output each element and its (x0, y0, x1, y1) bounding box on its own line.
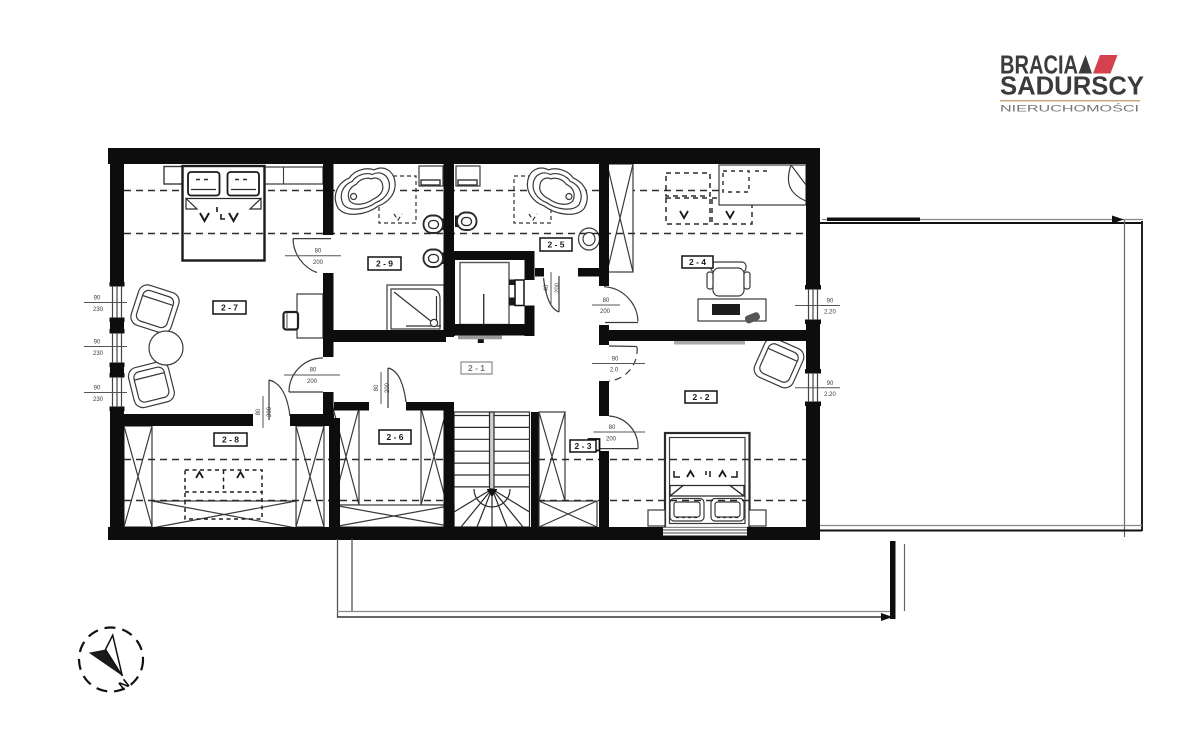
svg-text:2 - 2: 2 - 2 (692, 392, 709, 402)
svg-text:80: 80 (315, 249, 322, 255)
svg-text:SADURSCY: SADURSCY (1000, 71, 1144, 101)
svg-text:2 - 5: 2 - 5 (547, 240, 564, 250)
svg-text:2 - 1: 2 - 1 (468, 363, 485, 373)
svg-text:90: 90 (94, 340, 101, 346)
svg-text:90: 90 (94, 296, 101, 302)
svg-text:200: 200 (606, 437, 617, 443)
svg-text:200: 200 (385, 382, 391, 393)
svg-text:2.20: 2.20 (824, 310, 836, 316)
svg-text:200: 200 (267, 406, 273, 417)
svg-text:80: 80 (310, 368, 317, 374)
svg-text:80: 80 (603, 298, 610, 304)
svg-text:230: 230 (93, 307, 104, 313)
svg-text:40: 40 (544, 284, 550, 291)
svg-text:230: 230 (93, 351, 104, 357)
svg-text:200: 200 (555, 282, 561, 293)
svg-text:NIERUCHOMOŚCI: NIERUCHOMOŚCI (1000, 103, 1139, 115)
svg-text:80: 80 (609, 425, 616, 431)
svg-text:2 - 7: 2 - 7 (221, 303, 238, 313)
svg-text:90: 90 (612, 357, 619, 363)
svg-text:2 - 9: 2 - 9 (376, 259, 393, 269)
svg-text:200: 200 (600, 309, 611, 315)
svg-text:80: 80 (256, 408, 262, 415)
svg-text:230: 230 (93, 397, 104, 403)
svg-text:2 - 3: 2 - 3 (574, 441, 591, 451)
svg-text:2 - 6: 2 - 6 (386, 432, 403, 442)
svg-text:2.0: 2.0 (610, 368, 619, 374)
svg-text:90: 90 (94, 386, 101, 392)
svg-text:2 - 8: 2 - 8 (222, 435, 239, 445)
svg-text:2 - 4: 2 - 4 (689, 257, 706, 267)
svg-text:90: 90 (827, 381, 834, 387)
svg-text:80: 80 (374, 384, 380, 391)
svg-text:2.20: 2.20 (824, 392, 836, 398)
svg-text:200: 200 (313, 260, 324, 266)
svg-text:90: 90 (827, 299, 834, 305)
svg-text:200: 200 (307, 379, 318, 385)
